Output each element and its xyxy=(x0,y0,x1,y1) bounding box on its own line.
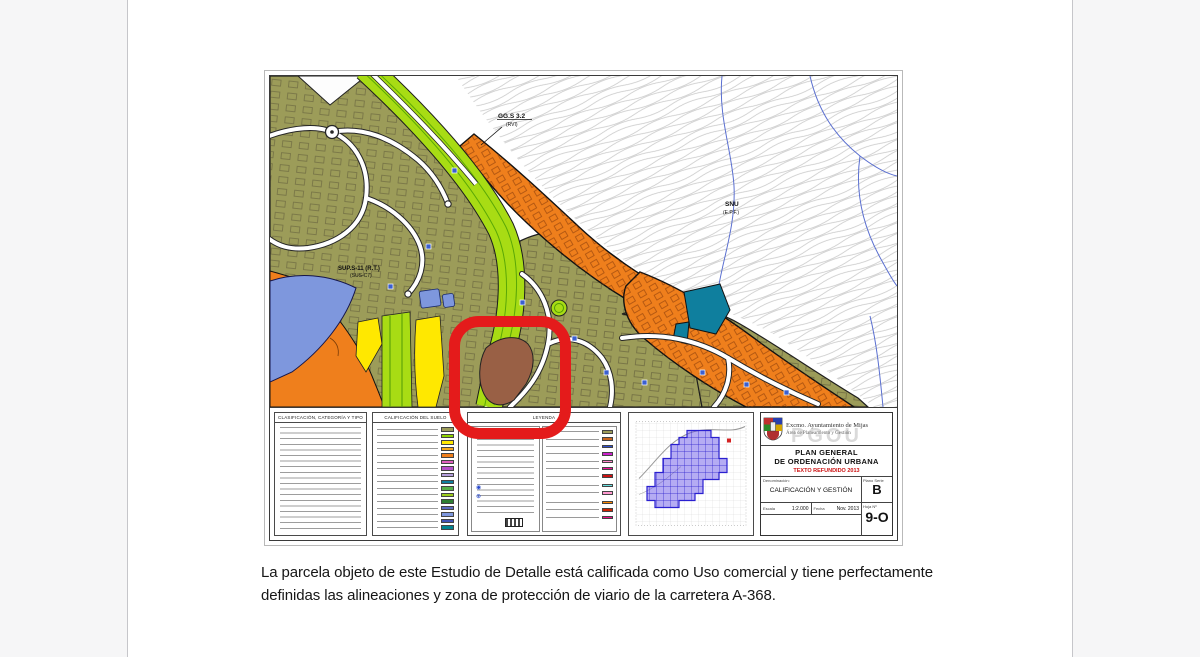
legend-row xyxy=(377,460,454,465)
color-chip xyxy=(602,445,613,449)
series-value: B xyxy=(863,483,891,496)
color-swatch xyxy=(441,434,454,439)
current-sheet-marker xyxy=(727,439,731,443)
legend-row xyxy=(546,516,613,520)
color-swatch xyxy=(441,525,454,530)
caption-paragraph: La parcela objeto de este Estudio de Det… xyxy=(261,561,963,607)
color-chip xyxy=(602,484,613,488)
color-chip xyxy=(602,508,613,512)
sheet-number: 9-O xyxy=(863,511,891,524)
legend-row xyxy=(377,486,454,491)
legend-row xyxy=(546,437,613,441)
date-segment: Fecha Nov. 2013 xyxy=(811,503,862,514)
org-department: Área de Planeamiento y Gestión xyxy=(786,431,868,436)
denomination-row: Denominación: CALIFICACIÓN Y GESTIÓN Pla… xyxy=(761,477,892,503)
title-block-header: Excmo. Ayuntamiento de Mijas Área de Pla… xyxy=(761,413,892,446)
color-swatch xyxy=(441,466,454,471)
scale-row: Escala 1:2.000 Fecha Nov. 2013 Hoja Nº xyxy=(761,503,892,536)
color-swatch xyxy=(441,453,454,458)
scale-label: Escala xyxy=(763,506,775,511)
legend-row xyxy=(377,493,454,498)
label-snu-sub: (E.P.F.) xyxy=(723,210,739,216)
mijas-coat-of-arms-icon xyxy=(763,417,783,441)
legend-strip: CLASIFICACIÓN, CATEGORÍA Y TIPO CALIFICA… xyxy=(270,407,897,540)
legend-row xyxy=(377,506,454,511)
highlight-rectangle xyxy=(449,316,571,439)
texto-refundido: TEXTO REFUNDIDO 2013 xyxy=(761,468,892,474)
legend-row xyxy=(377,480,454,485)
zoning-map: GG.S 3.2 (RVI) SNU (E.P.F.) SUP.S-11 (R.… xyxy=(270,76,897,407)
leyenda-left-column: ◉ ⊕ xyxy=(471,426,540,532)
color-swatch xyxy=(441,512,454,517)
legend-row xyxy=(377,499,454,504)
legend-row xyxy=(546,491,613,495)
legend-row xyxy=(377,473,454,478)
calificacion-rows xyxy=(377,427,454,530)
color-chip xyxy=(602,452,613,456)
sheet-index-map xyxy=(629,413,753,535)
org-name: Excmo. Ayuntamiento de Mijas xyxy=(786,422,868,429)
date-label: Fecha xyxy=(814,506,825,511)
color-swatch xyxy=(441,460,454,465)
blue-parcel xyxy=(419,289,441,309)
legend-row xyxy=(546,452,613,456)
legend-row xyxy=(546,474,613,478)
clasificacion-panel: CLASIFICACIÓN, CATEGORÍA Y TIPO xyxy=(274,412,367,536)
color-chip xyxy=(602,467,613,471)
legend-row xyxy=(377,525,454,530)
map-frame: GG.S 3.2 (RVI) SNU (E.P.F.) SUP.S-11 (R.… xyxy=(269,75,898,541)
scale-value: 1:2.000 xyxy=(792,506,809,512)
document-page: GG.S 3.2 (RVI) SNU (E.P.F.) SUP.S-11 (R.… xyxy=(127,0,1073,657)
label-snu: SNU xyxy=(725,201,739,208)
grid-symbol xyxy=(505,518,523,527)
legend-row xyxy=(546,484,613,488)
yellow-strip xyxy=(415,316,444,407)
blue-parcel xyxy=(442,293,455,307)
color-swatch xyxy=(441,506,454,511)
legend-row xyxy=(377,512,454,517)
leyenda-right-column xyxy=(542,426,617,532)
color-swatch xyxy=(441,499,454,504)
color-swatch xyxy=(441,480,454,485)
color-swatch xyxy=(441,519,454,524)
legend-row xyxy=(377,453,454,458)
series-cell: Plano Serie B xyxy=(862,477,892,502)
symbol-crosshair-icon: ⊕ xyxy=(476,494,481,500)
color-swatch xyxy=(441,486,454,491)
legend-row xyxy=(546,501,613,505)
legend-row xyxy=(377,447,454,452)
legend-row xyxy=(546,460,613,464)
calificacion-panel: CALIFICACIÓN DEL SUELO xyxy=(372,412,459,536)
legend-row xyxy=(377,440,454,445)
plan-title: PLAN GENERAL DE ORDENACIÓN URBANA TEXTO … xyxy=(761,446,892,477)
plan-title-line2: DE ORDENACIÓN URBANA xyxy=(761,458,892,467)
lime-roundabout xyxy=(551,300,567,316)
color-chip xyxy=(602,460,613,464)
placeholder-text-lines xyxy=(477,439,534,513)
title-block: Excmo. Ayuntamiento de Mijas Área de Pla… xyxy=(760,412,893,536)
color-swatch xyxy=(441,427,454,432)
color-chip xyxy=(602,437,613,441)
plan-map-figure: GG.S 3.2 (RVI) SNU (E.P.F.) SUP.S-11 (R.… xyxy=(264,70,903,546)
scale-segment: Escala 1:2.000 xyxy=(761,503,811,514)
color-swatch xyxy=(441,447,454,452)
legend-row xyxy=(546,445,613,449)
placeholder-text-lines xyxy=(280,427,361,529)
label-ggs: GG.S 3.2 xyxy=(498,113,525,120)
key-map-panel xyxy=(628,412,754,536)
legend-row xyxy=(546,467,613,471)
denomination-label: Denominación: xyxy=(763,478,859,483)
symbol-circle-icon: ◉ xyxy=(476,485,481,491)
sheet-cell: Hoja Nº 9-O xyxy=(862,503,892,536)
color-chip xyxy=(602,501,613,505)
color-swatch xyxy=(441,493,454,498)
lime-strip-vertical xyxy=(382,312,412,407)
legend-row xyxy=(377,427,454,432)
color-chip xyxy=(602,430,613,434)
color-chip xyxy=(602,474,613,478)
label-ggs-sub: (RVI) xyxy=(506,122,518,128)
calificacion-title: CALIFICACIÓN DEL SUELO xyxy=(373,413,458,423)
legend-row xyxy=(377,434,454,439)
color-chip xyxy=(602,491,613,495)
legend-row xyxy=(377,519,454,524)
color-swatch xyxy=(441,440,454,445)
date-value: Nov. 2013 xyxy=(837,506,859,512)
label-sup: SUP.S-11 (R.T.) xyxy=(338,266,380,272)
denomination-value: CALIFICACIÓN Y GESTIÓN xyxy=(763,487,859,494)
color-swatch xyxy=(441,473,454,478)
label-sup-sub: (SUS-C7) xyxy=(350,273,372,279)
legend-row xyxy=(546,508,613,512)
denomination-cell: Denominación: CALIFICACIÓN Y GESTIÓN xyxy=(761,477,862,502)
color-chip xyxy=(602,516,613,520)
legend-row xyxy=(377,466,454,471)
scale-cell: Escala 1:2.000 Fecha Nov. 2013 xyxy=(761,503,862,536)
clasificacion-title: CLASIFICACIÓN, CATEGORÍA Y TIPO xyxy=(275,413,366,423)
organization-names: Excmo. Ayuntamiento de Mijas Área de Pla… xyxy=(786,422,868,436)
